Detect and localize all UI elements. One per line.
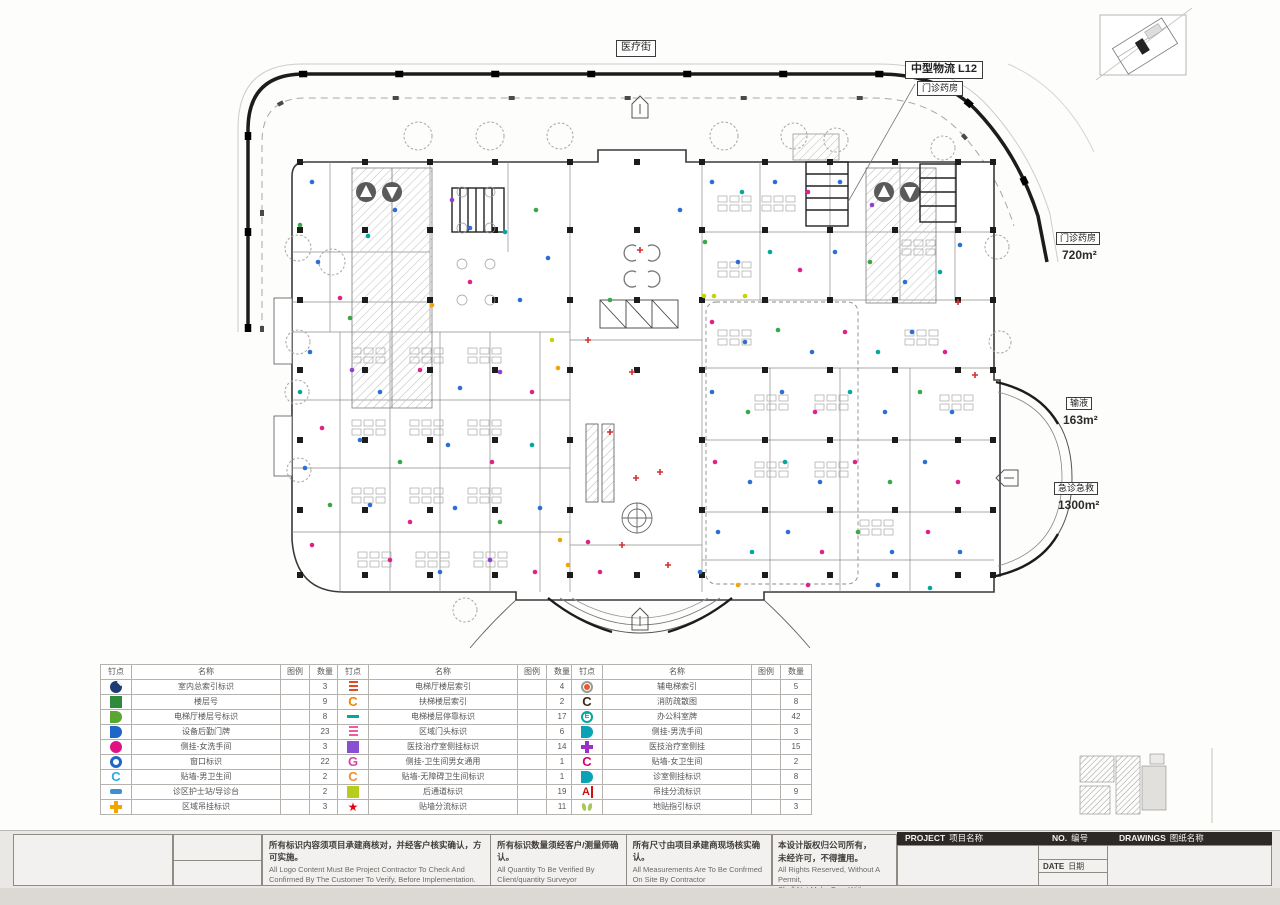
legend-header: 名称: [132, 665, 281, 680]
logistics-label: 中型物流 L12: [905, 61, 983, 79]
legend-example-cell: [281, 755, 310, 770]
legend-icon-stripes: [349, 681, 358, 693]
key-plan-top: [1096, 8, 1192, 80]
legend-item-qty: 22: [310, 755, 341, 770]
legend-icon-plus: [110, 801, 122, 813]
titleblock-logo-box: [13, 834, 173, 886]
legend-icon-square: [110, 696, 122, 708]
legend-icon-dash: [347, 715, 359, 718]
legend-item-name: 贴墙-女卫生间: [603, 755, 752, 770]
legend-item-qty: 42: [781, 710, 812, 725]
legend-example-cell: [281, 800, 310, 815]
legend-item-name: 贴墙-男卫生间: [132, 770, 281, 785]
legend-item-qty: 8: [310, 710, 341, 725]
date-label: DATE日期: [1039, 859, 1107, 873]
legend-example-cell: [281, 710, 310, 725]
drawing-sheet: 医疗街 中型物流 L12 门诊药房 门诊药房 720m² 输液 163m² 急诊…: [0, 0, 1280, 905]
legend-item-name: 诊室侧挂标识: [603, 770, 752, 785]
legend-item-name: 电梯楼层停靠标识: [369, 710, 518, 725]
legend-row: ★贴墙分流标识11: [338, 800, 578, 815]
east-entrance-canopy: [996, 382, 1072, 576]
legend-item-name: 侧挂-卫生间男女通用: [369, 755, 518, 770]
legend-example-cell: [518, 785, 547, 800]
legend-header: 数量: [781, 665, 812, 680]
legend-item-qty: 3: [310, 800, 341, 815]
legend-example-cell: [518, 680, 547, 695]
legend-item-name: 医技治疗室侧挂标识: [369, 740, 518, 755]
legend-example-cell: [752, 755, 781, 770]
legend-item-name: 侧挂-女洗手间: [132, 740, 281, 755]
legend-example-cell: [281, 770, 310, 785]
legend-row: 地贴指引标识3: [572, 800, 812, 815]
legend-header: 钉点: [572, 665, 603, 680]
legend-item-qty: 8: [781, 770, 812, 785]
legend-item-qty: 3: [781, 725, 812, 740]
legend-item-qty: 2: [310, 770, 341, 785]
legend-item-name: 区域吊挂标识: [132, 800, 281, 815]
area-value-infusion: 163m²: [1063, 413, 1098, 427]
legend-item-name: 楼层号: [132, 695, 281, 710]
legend-row: 电梯楼层停靠标识17: [338, 710, 578, 725]
legend-item-qty: 3: [781, 800, 812, 815]
key-plan-bottom: [1080, 754, 1166, 814]
legend-row: 设备后勤门牌23: [101, 725, 341, 740]
legend-row: 窗口标识22: [101, 755, 341, 770]
legend-row: 侧挂-男洗手间3: [572, 725, 812, 740]
legend-icon-feet: [581, 801, 593, 813]
logistics-sublabel: 门诊药房: [917, 81, 963, 96]
legend-header: 名称: [369, 665, 518, 680]
legend-icon-C: C: [581, 756, 593, 768]
legend-example-cell: [752, 710, 781, 725]
legend-icon-plus: [581, 741, 593, 753]
legend-item-qty: 2: [310, 785, 341, 800]
legend-example-cell: [518, 770, 547, 785]
number-label: NO.编号: [1052, 832, 1119, 845]
legend-table-1: 钉点名称图例数量室内总索引标识3楼层号9电梯厅楼层号标识8设备后勤门牌23侧挂-…: [100, 664, 341, 815]
legend-icon-G: G: [347, 756, 359, 768]
legend-header: 图例: [752, 665, 781, 680]
legend-icon-C: C: [347, 696, 359, 708]
legend-icon-halfD: [581, 726, 593, 738]
legend-example-cell: [281, 740, 310, 755]
legend-example-cell: [752, 725, 781, 740]
legend-item-name: 贴墙分流标识: [369, 800, 518, 815]
legend-row: C消防疏散图8: [572, 695, 812, 710]
legend-row: C贴墙-男卫生间2: [101, 770, 341, 785]
legend-item-name: 辅电梯索引: [603, 680, 752, 695]
round-feature: [622, 503, 652, 533]
legend-row: C扶梯楼层索引2: [338, 695, 578, 710]
legend-row: C贴墙-无障碍卫生间标识1: [338, 770, 578, 785]
legend-row: 室内总索引标识3: [101, 680, 341, 695]
legend-row: 医技治疗室侧挂15: [572, 740, 812, 755]
legend-item-name: 区域门头标识: [369, 725, 518, 740]
legend-example-cell: [518, 800, 547, 815]
legend-row: G侧挂-卫生间男女通用1: [338, 755, 578, 770]
legend-icon-Abar: A: [582, 786, 593, 798]
street-label: 医疗街: [616, 40, 656, 57]
legend-icon-C: C: [110, 771, 122, 783]
legend-icon-target: [581, 681, 593, 693]
area-value-pharmacy: 720m²: [1062, 248, 1097, 262]
legend-icon-circle: [110, 741, 122, 753]
legend-icon-star: ★: [347, 801, 359, 813]
legend-item-qty: 2: [781, 755, 812, 770]
area-label-emergency: 急诊急救: [1054, 482, 1098, 495]
legend-header: 钉点: [338, 665, 369, 680]
legend-example-cell: [518, 695, 547, 710]
title-block: 所有标识内容须项目承建商核对，并经客户核实确认，方可实施。 All Logo C…: [0, 830, 1280, 889]
legend-example-cell: [752, 680, 781, 695]
legend-item-qty: 23: [310, 725, 341, 740]
legend-row: A吊挂分流标识9: [572, 785, 812, 800]
titleblock-stamp-box: [173, 834, 262, 886]
legend-item-name: 设备后勤门牌: [132, 725, 281, 740]
note-quantity: 所有标识数量须经客户/测量师确认。 All Quantity To Be Ver…: [491, 835, 626, 885]
legend-row: 区域门头标识6: [338, 725, 578, 740]
legend-item-name: 室内总索引标识: [132, 680, 281, 695]
project-label: PROJECT项目名称: [897, 832, 1052, 845]
legend-item-qty: 5: [781, 680, 812, 695]
legend-row: 诊区护士站/导诊台2: [101, 785, 341, 800]
legend-example-cell: [281, 695, 310, 710]
legend-icon-C: C: [347, 771, 359, 783]
legend-row: 诊室侧挂标识8: [572, 770, 812, 785]
copyright-box: 本设计版权归公司所有， 未经许可，不得擅用。 All Rights Reserv…: [772, 834, 897, 886]
legend-header: 钉点: [101, 665, 132, 680]
legend-item-name: 扶梯楼层索引: [369, 695, 518, 710]
legend-icon-Ering: E: [581, 711, 593, 723]
legend-item-name: 诊区护士站/导诊台: [132, 785, 281, 800]
legend-item-qty: 9: [781, 785, 812, 800]
titleblock-header-bar: PROJECT项目名称 NO.编号 DRAWINGS图纸名称: [897, 832, 1272, 845]
legend-row: 辅电梯索引5: [572, 680, 812, 695]
legend-row: 后通道标识19: [338, 785, 578, 800]
page-margin: [0, 888, 1280, 905]
legend-example-cell: [752, 770, 781, 785]
legend-row: 区域吊挂标识3: [101, 800, 341, 815]
legend-row: 医技治疗室侧挂标识14: [338, 740, 578, 755]
legend-icon-halfD: [110, 711, 122, 723]
legend-icon-nav: [110, 681, 122, 693]
legend-row: 电梯厅楼层索引4: [338, 680, 578, 695]
legend-item-name: 医技治疗室侧挂: [603, 740, 752, 755]
legend-example-cell: [518, 725, 547, 740]
legend-example-cell: [752, 785, 781, 800]
area-label-pharmacy: 门诊药房: [1056, 232, 1100, 245]
legend-item-qty: 15: [781, 740, 812, 755]
legend-item-name: 贴墙-无障碍卫生间标识: [369, 770, 518, 785]
legend-header: 名称: [603, 665, 752, 680]
legend-header: 图例: [281, 665, 310, 680]
legend-example-cell: [281, 785, 310, 800]
legend-item-name: 侧挂-男洗手间: [603, 725, 752, 740]
legend-item-name: 办公科室牌: [603, 710, 752, 725]
legend-icon-halfD: [581, 771, 593, 783]
note-measurements: 所有尺寸由项目承建商现场核实确认。 All Measurements Are T…: [627, 835, 771, 885]
legend-icon-square: [347, 741, 359, 753]
legend-icon-halfD: [110, 726, 122, 738]
legend-icon-C: C: [581, 696, 593, 708]
legend-table-3: 钉点名称图例数量辅电梯索引5C消防疏散图8E办公科室牌42侧挂-男洗手间3医技治…: [571, 664, 812, 815]
legend-item-name: 后通道标识: [369, 785, 518, 800]
legend-example-cell: [752, 800, 781, 815]
legend-item-name: 电梯厅楼层号标识: [132, 710, 281, 725]
legend-row: E办公科室牌42: [572, 710, 812, 725]
legend-header: 图例: [518, 665, 547, 680]
legend-item-name: 吊挂分流标识: [603, 785, 752, 800]
legend-row: 电梯厅楼层号标识8: [101, 710, 341, 725]
number-column: DATE日期: [1038, 846, 1108, 885]
drawings-label: DRAWINGS图纸名称: [1119, 832, 1272, 845]
legend-example-cell: [518, 740, 547, 755]
legend-example-cell: [281, 680, 310, 695]
legend-icon-bar: [110, 789, 122, 794]
legend-icon-stripes: [349, 726, 358, 738]
legend-item-name: 地贴指引标识: [603, 800, 752, 815]
legend-row: 侧挂-女洗手间3: [101, 740, 341, 755]
legend-item-qty: 9: [310, 695, 341, 710]
legend-example-cell: [752, 740, 781, 755]
legend-header: 数量: [310, 665, 341, 680]
legend-row: 楼层号9: [101, 695, 341, 710]
legend-table-2: 钉点名称图例数量电梯厅楼层索引4C扶梯楼层索引2电梯楼层停靠标识17区域门头标识…: [337, 664, 578, 815]
note-content-check: 所有标识内容须项目承建商核对，并经客户核实确认，方可实施。 All Logo C…: [263, 835, 491, 885]
titleblock-notes: 所有标识内容须项目承建商核对，并经客户核实确认，方可实施。 All Logo C…: [262, 834, 772, 886]
legend-item-name: 电梯厅楼层索引: [369, 680, 518, 695]
legend-row: C贴墙-女卫生间2: [572, 755, 812, 770]
legend-example-cell: [518, 710, 547, 725]
legend-item-qty: 3: [310, 740, 341, 755]
legend-icon-square: [347, 786, 359, 798]
legend-icon-ring: [110, 756, 122, 768]
legend-item-qty: 8: [781, 695, 812, 710]
legend-example-cell: [281, 725, 310, 740]
legend-example-cell: [518, 755, 547, 770]
legend-item-name: 窗口标识: [132, 755, 281, 770]
titleblock-body: DATE日期: [897, 845, 1272, 886]
area-label-infusion: 输液: [1066, 397, 1092, 410]
legend-item-qty: 3: [310, 680, 341, 695]
legend-example-cell: [752, 695, 781, 710]
area-value-emergency: 1300m²: [1058, 498, 1099, 512]
legend-item-name: 消防疏散图: [603, 695, 752, 710]
